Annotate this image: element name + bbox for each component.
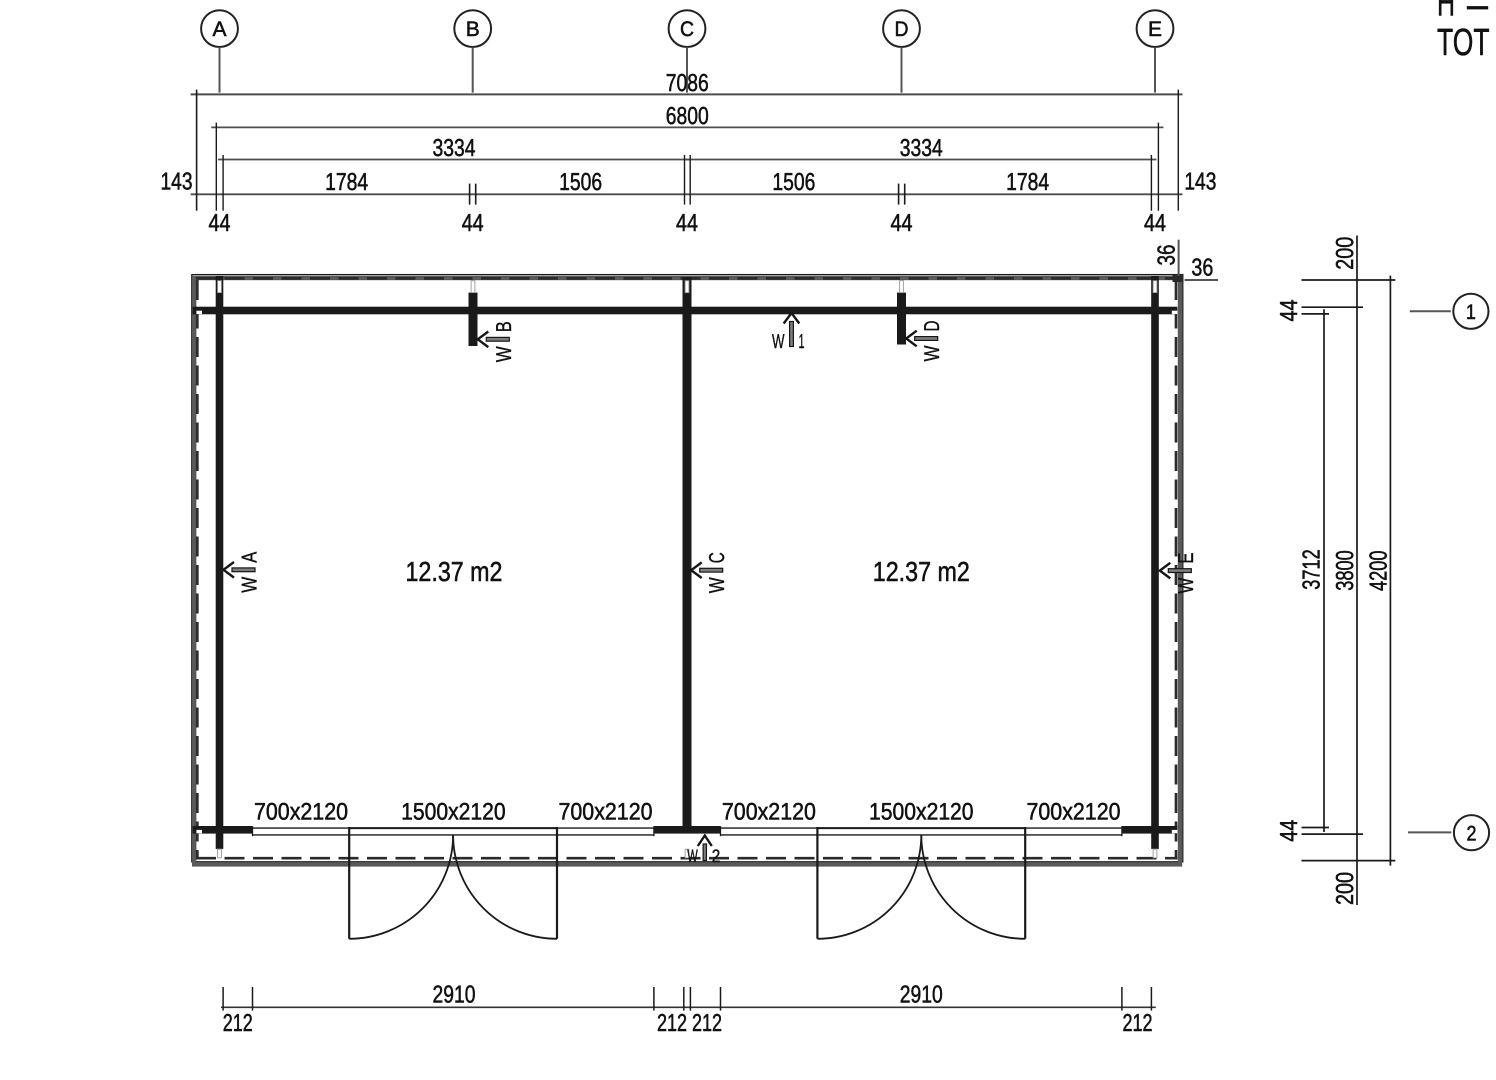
svg-text:A: A bbox=[213, 18, 227, 41]
svg-text:W: W bbox=[772, 331, 785, 353]
svg-text:W: W bbox=[705, 577, 729, 594]
svg-text:3334: 3334 bbox=[900, 135, 943, 162]
svg-text:3334: 3334 bbox=[433, 135, 476, 162]
svg-text:143: 143 bbox=[1184, 169, 1216, 196]
svg-text:200: 200 bbox=[1332, 872, 1359, 905]
svg-text:700x2120: 700x2120 bbox=[559, 799, 653, 826]
svg-text:1: 1 bbox=[799, 331, 805, 353]
svg-text:1784: 1784 bbox=[1006, 169, 1049, 196]
svg-text:1500x2120: 1500x2120 bbox=[869, 799, 974, 826]
svg-text:H: H bbox=[1437, 0, 1455, 25]
svg-text:6800: 6800 bbox=[666, 103, 709, 130]
svg-text:2: 2 bbox=[1467, 822, 1477, 845]
svg-text:1: 1 bbox=[1466, 301, 1476, 324]
svg-text:A: A bbox=[238, 551, 262, 563]
svg-text:12.37 m2: 12.37 m2 bbox=[406, 556, 503, 587]
svg-text:212: 212 bbox=[692, 1010, 722, 1037]
svg-text:44: 44 bbox=[1144, 210, 1166, 237]
svg-text:3800: 3800 bbox=[1332, 550, 1359, 591]
svg-text:7086: 7086 bbox=[666, 70, 709, 97]
svg-text:4200: 4200 bbox=[1365, 551, 1392, 592]
svg-text:B: B bbox=[492, 321, 516, 332]
svg-text:W: W bbox=[1174, 577, 1198, 594]
svg-text:700x2120: 700x2120 bbox=[722, 799, 816, 826]
svg-text:B: B bbox=[466, 18, 480, 41]
svg-text:12.37 m2: 12.37 m2 bbox=[873, 556, 970, 587]
svg-text:W: W bbox=[492, 346, 516, 363]
svg-text:2910: 2910 bbox=[900, 982, 943, 1009]
svg-text:1784: 1784 bbox=[325, 169, 368, 196]
svg-text:E: E bbox=[1174, 553, 1198, 564]
svg-text:700x2120: 700x2120 bbox=[254, 799, 348, 826]
svg-text:700x2120: 700x2120 bbox=[1027, 799, 1121, 826]
svg-text:36: 36 bbox=[1154, 245, 1181, 266]
svg-text:212: 212 bbox=[223, 1010, 253, 1037]
svg-text:D: D bbox=[895, 18, 909, 41]
svg-text:D: D bbox=[920, 321, 944, 332]
svg-text:36: 36 bbox=[1191, 255, 1213, 282]
svg-text:44: 44 bbox=[1276, 820, 1303, 842]
svg-text:W: W bbox=[238, 576, 262, 593]
svg-text:2910: 2910 bbox=[433, 982, 476, 1009]
svg-text:1506: 1506 bbox=[559, 169, 602, 196]
svg-text:44: 44 bbox=[462, 210, 484, 237]
svg-text:44: 44 bbox=[676, 210, 698, 237]
svg-text:=: = bbox=[1465, 0, 1490, 25]
svg-text:W: W bbox=[687, 846, 698, 866]
svg-text:212: 212 bbox=[1123, 1010, 1153, 1037]
svg-text:1500x2120: 1500x2120 bbox=[401, 799, 506, 826]
svg-text:2: 2 bbox=[712, 846, 721, 866]
svg-text:TOT: TOT bbox=[1437, 22, 1490, 64]
svg-text:200: 200 bbox=[1332, 237, 1359, 270]
svg-text:212: 212 bbox=[657, 1010, 687, 1037]
svg-text:C: C bbox=[680, 18, 694, 41]
svg-text:44: 44 bbox=[209, 210, 231, 237]
svg-text:44: 44 bbox=[891, 210, 913, 237]
svg-text:E: E bbox=[1148, 18, 1162, 41]
svg-text:C: C bbox=[705, 552, 729, 563]
svg-text:3712: 3712 bbox=[1299, 549, 1326, 590]
svg-text:44: 44 bbox=[1276, 300, 1303, 322]
svg-text:1506: 1506 bbox=[772, 169, 815, 196]
svg-text:W: W bbox=[920, 345, 944, 362]
svg-text:143: 143 bbox=[161, 169, 193, 196]
